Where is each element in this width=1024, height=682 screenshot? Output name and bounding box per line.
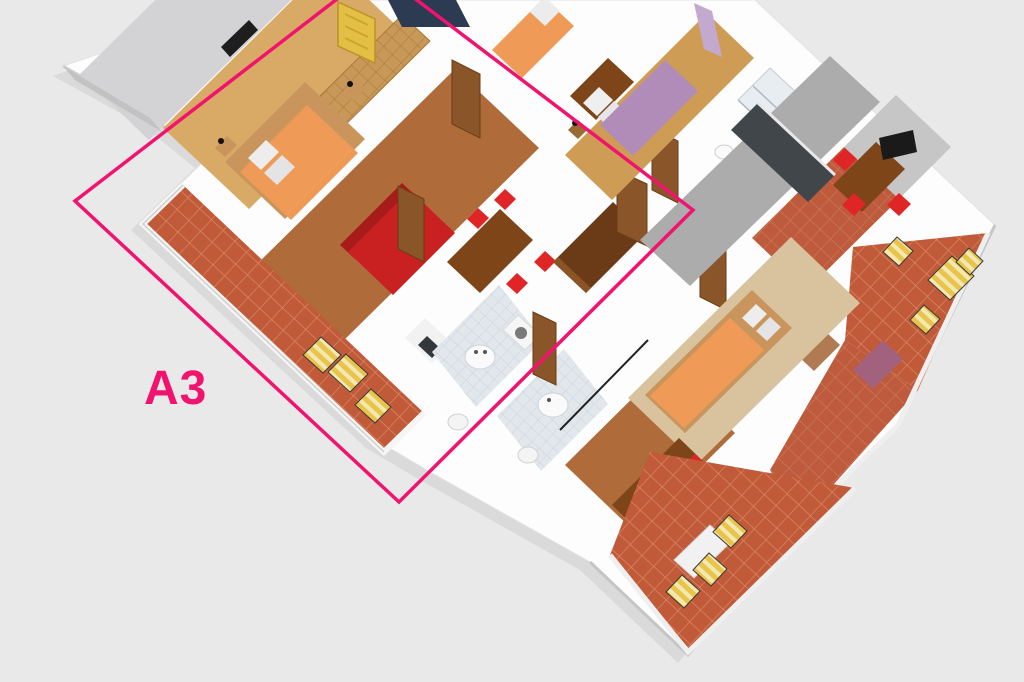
toilet (448, 414, 468, 430)
bedside-lamp (218, 138, 224, 144)
navy-counter (388, 0, 470, 27)
toilet (518, 447, 538, 463)
bedside-lamp (347, 81, 353, 87)
unit-label: A3 (144, 362, 207, 415)
door (398, 186, 424, 262)
floorplan-render: A3 (0, 0, 1024, 682)
sink-tap (483, 350, 487, 354)
door (452, 60, 480, 138)
sink-tap (547, 398, 551, 402)
sink-tap (474, 350, 478, 354)
floorplan-screenshot: A3 (0, 0, 1024, 682)
sink (465, 345, 495, 369)
washing-machine-door (515, 327, 527, 339)
sink (538, 393, 568, 417)
